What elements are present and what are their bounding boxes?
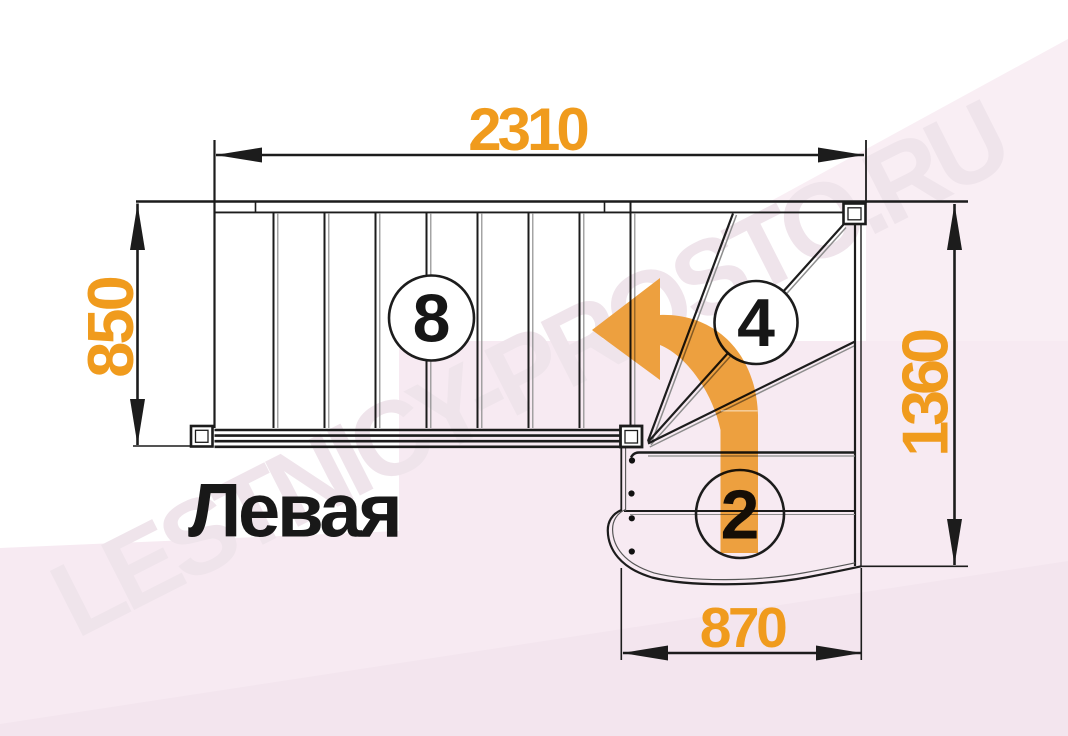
svg-text:8: 8 bbox=[413, 281, 451, 357]
svg-text:1360: 1360 bbox=[889, 330, 962, 457]
svg-text:Левая: Левая bbox=[188, 469, 399, 554]
svg-text:870: 870 bbox=[700, 596, 786, 660]
svg-text:850: 850 bbox=[74, 277, 147, 377]
svg-text:2310: 2310 bbox=[468, 96, 587, 163]
svg-text:4: 4 bbox=[737, 285, 775, 361]
